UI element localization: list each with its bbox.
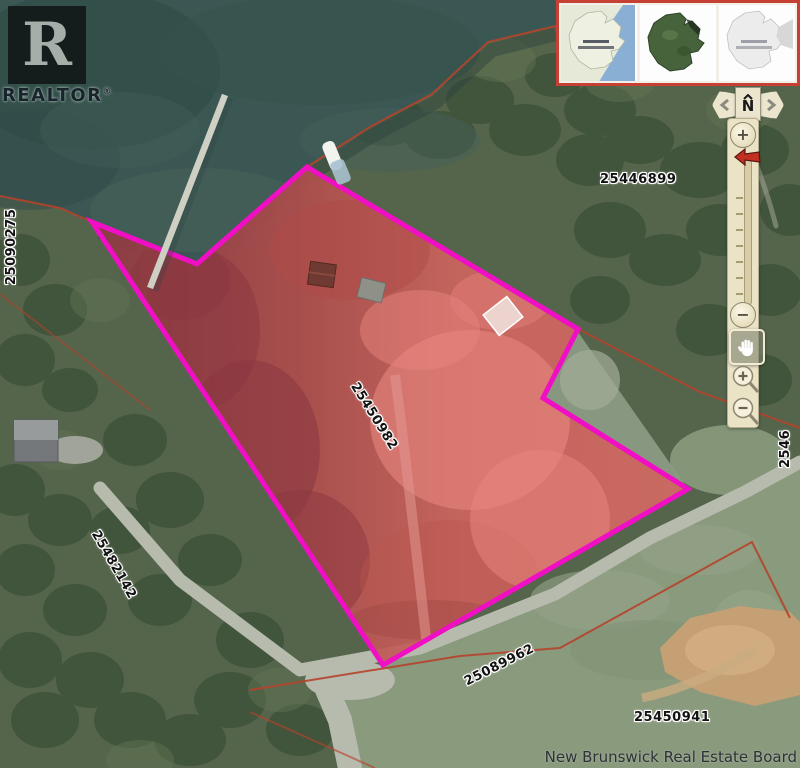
realtor-logo: R: [8, 6, 86, 84]
slider-zoom-out-button[interactable]: −: [730, 302, 756, 328]
magnify-in-button[interactable]: [731, 364, 761, 394]
red-arrow-icon: [733, 146, 761, 168]
pid-label-bottom-right: 25450941: [634, 710, 710, 725]
north-button[interactable]: N: [735, 87, 761, 121]
slider-tick: [736, 277, 743, 279]
slider-tick: [736, 261, 743, 263]
magnifier-minus-icon: [731, 396, 761, 426]
cabin: [307, 261, 336, 287]
magnify-out-button[interactable]: [731, 396, 761, 426]
north-label: N: [742, 99, 755, 114]
realtor-wordmark: REALTOR®: [2, 85, 113, 106]
slider-tick: [736, 197, 743, 199]
pid-label-25446899: 25446899: [600, 172, 676, 187]
pid-label-right-edge: 2546: [778, 430, 793, 468]
aerial-imagery: [0, 0, 800, 768]
pid-label-left-shore: 25090275: [4, 209, 19, 285]
map-canvas[interactable]: 25446899 25450982 25090275 25482142 2508…: [0, 0, 800, 768]
inset-street-map[interactable]: [561, 5, 637, 81]
slider-tick: [736, 229, 743, 231]
inset-satellite-map[interactable]: [640, 5, 716, 81]
attribution-text: New Brunswick Real Estate Board: [545, 748, 797, 766]
inset-grayscale-map[interactable]: [719, 5, 795, 81]
slider-tick: [736, 213, 743, 215]
slider-tick: [736, 245, 743, 247]
magnifier-plus-icon: [731, 364, 761, 394]
slider-zoom-in-button[interactable]: +: [730, 122, 756, 148]
chevron-left-icon: [719, 98, 731, 112]
grayscale-map-thumbnail: [719, 5, 793, 81]
street-map-thumbnail: [561, 5, 635, 81]
satellite-map-thumbnail: [640, 5, 714, 81]
realtor-logo-r: R: [22, 15, 72, 75]
hand-icon: [736, 336, 758, 358]
zoom-slider-track[interactable]: [744, 155, 752, 305]
zoom-slider-handle[interactable]: [733, 146, 761, 168]
locator-inset: [556, 0, 800, 86]
pan-tool-button[interactable]: [729, 329, 765, 365]
slider-tick: [736, 293, 743, 295]
realtor-wordmark-text: REALTOR: [2, 85, 103, 106]
chevron-right-icon: [765, 98, 777, 112]
registered-symbol: ®: [103, 87, 114, 97]
